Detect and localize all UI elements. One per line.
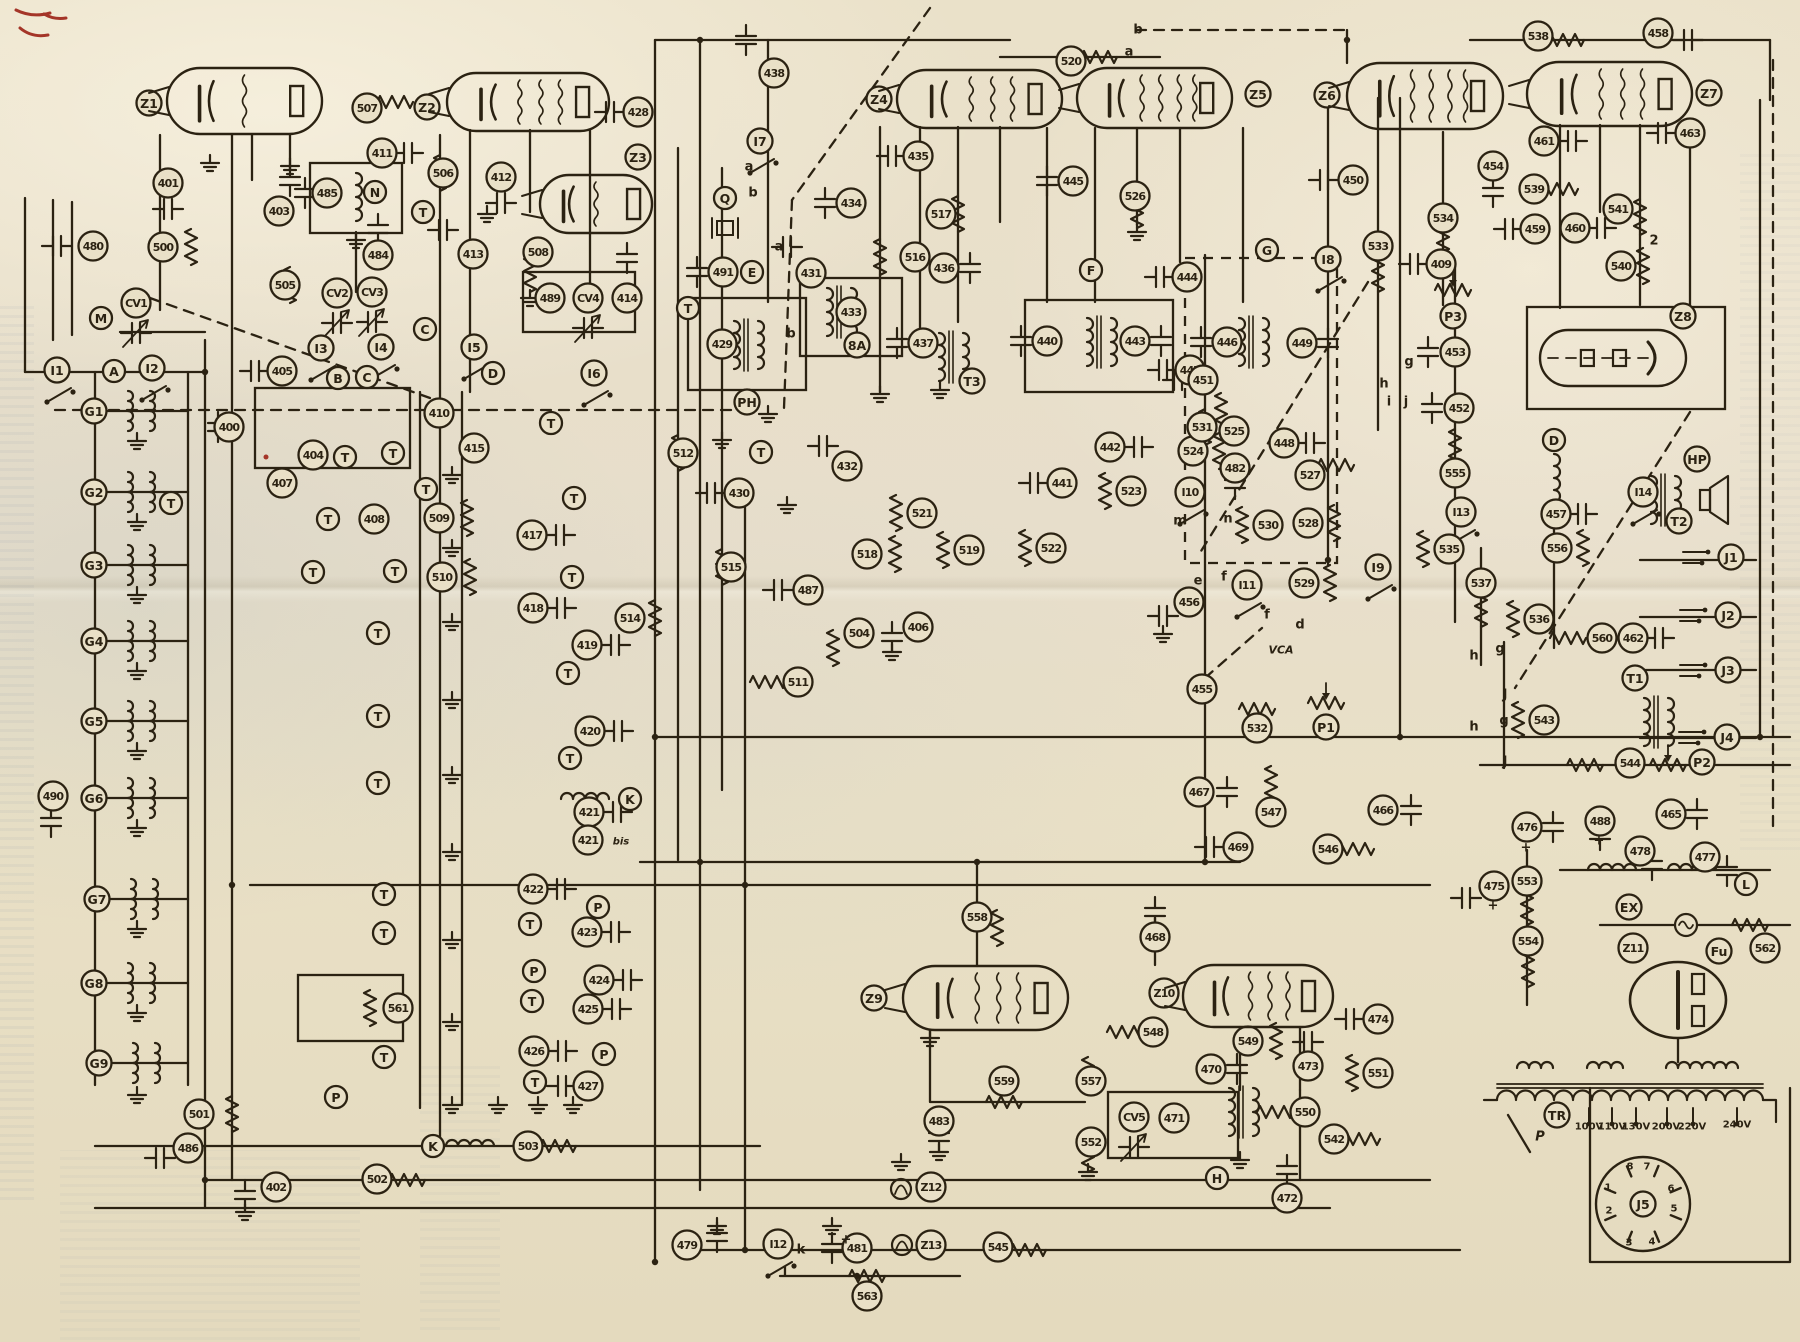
callout-442: 442: [1096, 433, 1125, 462]
svg-text:I12: I12: [769, 1238, 786, 1251]
callout-T: T: [302, 561, 324, 583]
svg-text:T: T: [380, 926, 389, 941]
label-h: h: [1379, 377, 1388, 392]
callout-T: T: [373, 922, 395, 944]
label-130V: 130V: [1622, 1122, 1651, 1133]
callout-549: 549: [1234, 1027, 1263, 1056]
svg-text:Z3: Z3: [629, 150, 647, 165]
callout-509: 509: [425, 504, 454, 533]
svg-text:486: 486: [178, 1142, 200, 1155]
callout-T: T: [415, 478, 437, 500]
callout-T: T: [540, 412, 562, 434]
callout-448: 448: [1270, 429, 1299, 458]
callout-511: 511: [784, 668, 813, 697]
svg-text:I13: I13: [1452, 506, 1469, 519]
svg-text:404: 404: [303, 449, 325, 462]
callout-403: 403: [265, 197, 294, 226]
svg-text:Z6: Z6: [1318, 88, 1336, 103]
svg-text:CV1: CV1: [125, 297, 147, 310]
label-a: a: [775, 240, 784, 255]
callout-470: 470: [1197, 1055, 1226, 1084]
callout-521: 521: [908, 499, 937, 528]
callout-I10: I10: [1176, 478, 1205, 507]
label-VCA: VCA: [1268, 644, 1293, 657]
svg-text:556: 556: [1547, 542, 1569, 555]
label-g: g: [1499, 714, 1508, 729]
callout-559: 559: [990, 1067, 1019, 1096]
callout-458: 458: [1644, 19, 1673, 48]
svg-text:455: 455: [1192, 683, 1213, 696]
callout-522: 522: [1037, 534, 1066, 563]
svg-text:534: 534: [1433, 212, 1455, 225]
svg-text:D: D: [1549, 433, 1559, 448]
svg-text:L: L: [1742, 877, 1750, 892]
svg-text:528: 528: [1298, 517, 1319, 530]
svg-text:Z1: Z1: [140, 96, 158, 111]
label-f: f: [1221, 570, 1227, 585]
svg-text:444: 444: [1177, 271, 1199, 284]
svg-text:470: 470: [1201, 1063, 1223, 1076]
svg-text:I9: I9: [1371, 560, 1384, 575]
svg-text:T: T: [324, 512, 333, 527]
svg-text:P: P: [599, 1047, 608, 1062]
callout-T1: T1: [1623, 666, 1648, 691]
label-i: i: [1387, 395, 1391, 410]
svg-text:465: 465: [1661, 808, 1682, 821]
callout-G8: G8: [82, 971, 107, 996]
svg-text:445: 445: [1063, 175, 1084, 188]
label-b: b: [748, 186, 757, 201]
callout-CV2: CV2: [323, 279, 352, 308]
svg-text:562: 562: [1755, 942, 1776, 955]
svg-text:431: 431: [801, 267, 822, 280]
label-P: P: [1535, 1130, 1545, 1145]
svg-text:G4: G4: [85, 634, 104, 649]
svg-text:532: 532: [1247, 722, 1268, 735]
callout-D: D: [482, 362, 504, 384]
svg-text:425: 425: [578, 1003, 599, 1016]
label-f: f: [1264, 608, 1270, 623]
svg-text:542: 542: [1324, 1133, 1345, 1146]
callout-G4: G4: [82, 629, 107, 654]
svg-text:J3: J3: [1720, 663, 1734, 678]
callout-431: 431: [797, 259, 826, 288]
svg-text:418: 418: [523, 602, 544, 615]
svg-text:427: 427: [578, 1080, 599, 1093]
svg-text:Z13: Z13: [921, 1239, 942, 1252]
svg-text:457: 457: [1546, 508, 1567, 521]
callout-Q: Q: [714, 187, 736, 209]
callout-415: 415: [460, 434, 489, 463]
callout-465: 465: [1657, 800, 1686, 829]
svg-text:CV5: CV5: [1123, 1111, 1145, 1124]
callout-471: 471: [1160, 1104, 1189, 1133]
label-g: g: [1495, 642, 1504, 657]
callout-476: 476: [1513, 813, 1542, 842]
callout-556: 556: [1543, 534, 1572, 563]
svg-text:476: 476: [1517, 821, 1539, 834]
svg-text:480: 480: [83, 240, 105, 253]
callout-527: 527: [1296, 461, 1325, 490]
callout-N: N: [364, 181, 386, 203]
callout-B: B: [327, 367, 349, 389]
callout-506: 506: [429, 159, 458, 188]
svg-text:485: 485: [317, 187, 338, 200]
tube-Z8: [1540, 330, 1686, 386]
svg-text:G2: G2: [85, 485, 104, 500]
label-+: +: [841, 1233, 852, 1248]
callout-EX: EX: [1617, 895, 1642, 920]
svg-text:507: 507: [357, 102, 378, 115]
callout-CV1: CV1: [122, 289, 151, 318]
svg-text:484: 484: [368, 249, 390, 262]
svg-text:436: 436: [934, 262, 956, 275]
callout-480: 480: [79, 232, 108, 261]
svg-text:P: P: [593, 900, 602, 915]
callout-I9: I9: [1366, 555, 1391, 580]
callout-429: 429: [708, 330, 737, 359]
svg-text:I10: I10: [1181, 486, 1199, 499]
svg-text:HP: HP: [1687, 452, 1707, 467]
callout-T: T: [750, 441, 772, 463]
callout-551: 551: [1364, 1059, 1393, 1088]
svg-text:514: 514: [620, 612, 642, 625]
callout-417: 417: [518, 521, 547, 550]
svg-text:I8: I8: [1321, 252, 1334, 267]
svg-text:T: T: [419, 205, 428, 220]
svg-text:T: T: [380, 887, 389, 902]
callout-T: T: [677, 297, 699, 319]
svg-text:525: 525: [1224, 425, 1245, 438]
svg-text:413: 413: [463, 248, 484, 261]
label-2: 2: [1649, 234, 1658, 249]
svg-text:422: 422: [523, 883, 544, 896]
tube-Z6: [1329, 63, 1503, 129]
callout-419: 419: [573, 631, 602, 660]
callout-Z2: Z2: [415, 95, 440, 120]
callout-G1: G1: [82, 399, 107, 424]
svg-text:410: 410: [429, 407, 451, 420]
callout-553: 553: [1513, 867, 1542, 896]
label-d: d: [1295, 618, 1304, 633]
callout-P3: P3: [1441, 304, 1466, 329]
svg-text:454: 454: [1483, 160, 1505, 173]
svg-text:545: 545: [988, 1241, 1009, 1254]
svg-text:G1: G1: [85, 404, 104, 419]
svg-text:C: C: [362, 370, 371, 385]
svg-text:433: 433: [841, 306, 862, 319]
callout-453: 453: [1441, 338, 1470, 367]
callout-420: 420: [576, 717, 605, 746]
svg-text:560: 560: [1592, 632, 1614, 645]
callout-Z12: Z12: [917, 1173, 946, 1202]
tube-Z5: [1059, 68, 1232, 128]
callout-547: 547: [1257, 798, 1286, 827]
label-+: +: [1488, 899, 1499, 914]
callout-T: T: [334, 446, 356, 468]
svg-text:419: 419: [577, 639, 598, 652]
svg-text:473: 473: [1298, 1060, 1319, 1073]
svg-text:P3: P3: [1444, 309, 1462, 324]
callout-J3: J3: [1716, 658, 1741, 683]
svg-text:501: 501: [189, 1108, 210, 1121]
callout-K: K: [422, 1135, 444, 1157]
svg-text:491: 491: [713, 266, 734, 279]
svg-text:557: 557: [1081, 1075, 1102, 1088]
callout-548: 548: [1139, 1018, 1168, 1047]
callout-488: 488: [1586, 807, 1615, 836]
callout-433: 433: [837, 298, 866, 327]
callout-536: 536: [1525, 605, 1554, 634]
svg-text:530: 530: [1258, 519, 1280, 532]
label-j: j: [1403, 395, 1408, 410]
callout-G: G: [1256, 239, 1278, 261]
svg-text:G8: G8: [85, 976, 104, 991]
label-e: e: [1194, 574, 1203, 589]
svg-text:T1: T1: [1626, 671, 1643, 686]
svg-text:561: 561: [388, 1002, 409, 1015]
label-6: 6: [1668, 1184, 1675, 1195]
svg-text:Z8: Z8: [1674, 309, 1692, 324]
label-5: 5: [1671, 1204, 1678, 1215]
callout-450: 450: [1339, 166, 1368, 195]
svg-text:516: 516: [905, 251, 927, 264]
svg-text:469: 469: [1228, 841, 1249, 854]
callout-K: K: [619, 788, 641, 810]
callout-563: 563: [853, 1282, 882, 1311]
svg-text:401: 401: [158, 177, 179, 190]
callout-J5: J5: [1631, 1192, 1656, 1217]
svg-text:456: 456: [1179, 596, 1201, 609]
label-200V: 200V: [1652, 1122, 1681, 1133]
callout-Z7: Z7: [1697, 81, 1722, 106]
svg-text:T: T: [374, 626, 383, 641]
callout-I12: I12: [764, 1230, 793, 1259]
svg-text:P1: P1: [1317, 720, 1335, 735]
callout-428: 428: [624, 98, 653, 127]
svg-text:T: T: [341, 450, 350, 465]
svg-text:472: 472: [1277, 1192, 1298, 1205]
svg-text:524: 524: [1183, 445, 1205, 458]
callout-I7: I7: [748, 129, 773, 154]
callout-T: T: [384, 560, 406, 582]
callout-D: D: [1543, 429, 1565, 451]
svg-text:T: T: [684, 301, 693, 316]
svg-text:533: 533: [1368, 240, 1389, 253]
svg-text:479: 479: [677, 1239, 698, 1252]
svg-text:468: 468: [1145, 931, 1166, 944]
callout-Fu: Fu: [1707, 939, 1732, 964]
callout-557: 557: [1077, 1067, 1106, 1096]
callout-555: 555: [1441, 459, 1470, 488]
svg-text:547: 547: [1261, 806, 1282, 819]
tube-Z4: [879, 70, 1062, 128]
svg-text:T: T: [547, 416, 556, 431]
svg-text:535: 535: [1439, 543, 1460, 556]
label-h: h: [1469, 720, 1478, 735]
svg-text:I5: I5: [467, 340, 480, 355]
svg-text:500: 500: [153, 241, 175, 254]
callout-454: 454: [1479, 152, 1508, 181]
callout-562: 562: [1751, 934, 1780, 963]
svg-text:435: 435: [908, 150, 929, 163]
svg-text:515: 515: [721, 561, 742, 574]
callout-Z3: Z3: [626, 145, 651, 170]
svg-text:T: T: [570, 491, 579, 506]
svg-text:489: 489: [540, 292, 561, 305]
svg-text:531: 531: [1192, 421, 1213, 434]
callout-462: 462: [1619, 624, 1648, 653]
tube-Z2: [429, 73, 609, 131]
callout-T2: T2: [1667, 509, 1692, 534]
callout-455: 455: [1188, 675, 1217, 704]
callout-487: 487: [794, 576, 823, 605]
svg-text:550: 550: [1295, 1106, 1317, 1119]
svg-text:544: 544: [1620, 757, 1642, 770]
label-b: b: [786, 327, 795, 342]
callout-552: 552: [1077, 1128, 1106, 1157]
label-a: a: [1125, 45, 1134, 60]
label-J: J: [1502, 755, 1508, 770]
callout-434: 434: [837, 189, 866, 218]
callout-L: L: [1735, 873, 1757, 895]
label-7: 7: [1644, 1162, 1651, 1173]
svg-text:Z12: Z12: [921, 1181, 942, 1194]
callout-437: 437: [909, 329, 938, 358]
label-+: +: [1521, 841, 1532, 856]
callout-501: 501: [185, 1100, 214, 1129]
svg-text:558: 558: [967, 911, 988, 924]
callout-561: 561: [384, 994, 413, 1023]
svg-text:420: 420: [580, 725, 602, 738]
svg-text:432: 432: [837, 460, 858, 473]
svg-text:I1: I1: [50, 363, 63, 378]
svg-text:T: T: [422, 482, 431, 497]
svg-text:460: 460: [1565, 222, 1587, 235]
callout-478: 478: [1626, 837, 1655, 866]
svg-text:452: 452: [1449, 402, 1470, 415]
svg-text:E: E: [748, 265, 757, 280]
svg-text:563: 563: [857, 1290, 878, 1303]
callout-P: P: [325, 1086, 347, 1108]
callout-477: 477: [1691, 843, 1720, 872]
svg-text:J4: J4: [1719, 730, 1734, 745]
svg-text:CV2: CV2: [326, 287, 348, 300]
callout-485: 485: [313, 179, 342, 208]
callout-441: 441: [1048, 469, 1077, 498]
callout-508: 508: [524, 238, 553, 267]
callout-T: T: [561, 566, 583, 588]
callout-HP: HP: [1685, 447, 1710, 472]
callout-451: 451: [1189, 366, 1218, 395]
svg-text:520: 520: [1061, 55, 1083, 68]
components-layer: [41, 25, 1776, 1282]
svg-text:559: 559: [994, 1075, 1015, 1088]
svg-text:T: T: [167, 496, 176, 511]
svg-text:446: 446: [1217, 336, 1239, 349]
callout-461: 461: [1530, 127, 1559, 156]
callout-525: 525: [1220, 417, 1249, 446]
svg-text:551: 551: [1368, 1067, 1389, 1080]
callout-400: 400: [215, 413, 244, 442]
callout-I2: I2: [140, 356, 165, 381]
callout-A: A: [103, 360, 125, 382]
callout-J4: J4: [1715, 725, 1740, 750]
label-a: a: [745, 160, 754, 175]
svg-text:552: 552: [1081, 1136, 1102, 1149]
svg-text:441: 441: [1052, 477, 1073, 490]
callout-517: 517: [927, 200, 956, 229]
callout-486: 486: [174, 1134, 203, 1163]
svg-text:505: 505: [275, 279, 296, 292]
callout-405: 405: [268, 357, 297, 386]
svg-text:417: 417: [522, 529, 543, 542]
callout-423: 423: [573, 918, 602, 947]
svg-text:T: T: [391, 564, 400, 579]
svg-text:CV3: CV3: [361, 286, 383, 299]
svg-text:539: 539: [1524, 183, 1545, 196]
callout-472: 472: [1273, 1184, 1302, 1213]
callout-406: 406: [904, 613, 933, 642]
callout-E: E: [741, 261, 763, 283]
callout-I5: I5: [462, 335, 487, 360]
svg-text:466: 466: [1373, 804, 1395, 817]
callout-443: 443: [1121, 327, 1150, 356]
svg-text:G9: G9: [90, 1056, 109, 1071]
callout-PH: PH: [735, 390, 760, 415]
callout-490: 490: [39, 782, 68, 811]
callout-449: 449: [1288, 329, 1317, 358]
callout-404: 404: [299, 441, 328, 470]
callout-531: 531: [1188, 413, 1217, 442]
callout-539: 539: [1520, 175, 1549, 204]
callout-T: T: [521, 990, 543, 1012]
label-240V: 240V: [1723, 1120, 1752, 1131]
svg-text:529: 529: [1294, 577, 1315, 590]
callout-P1: P1: [1314, 715, 1339, 740]
svg-text:I6: I6: [587, 366, 601, 381]
callout-407: 407: [268, 469, 297, 498]
callout-520: 520: [1057, 47, 1086, 76]
svg-text:548: 548: [1143, 1026, 1164, 1039]
callout-484: 484: [364, 241, 393, 270]
svg-text:412: 412: [491, 171, 512, 184]
svg-text:T: T: [566, 751, 575, 766]
svg-text:478: 478: [1630, 845, 1651, 858]
callout-528: 528: [1294, 509, 1323, 538]
svg-text:Q: Q: [720, 191, 731, 206]
callout-408: 408: [360, 505, 389, 534]
svg-text:421: 421: [579, 806, 600, 819]
svg-text:451: 451: [1193, 374, 1214, 387]
svg-text:541: 541: [1608, 203, 1629, 216]
svg-text:I14: I14: [1634, 486, 1652, 499]
callout-T: T: [160, 492, 182, 514]
callout-504: 504: [845, 619, 874, 648]
svg-text:474: 474: [1368, 1013, 1390, 1026]
svg-text:438: 438: [764, 67, 785, 80]
svg-text:449: 449: [1292, 337, 1313, 350]
svg-text:T: T: [757, 445, 766, 460]
svg-text:426: 426: [524, 1045, 546, 1058]
callout-I8: I8: [1316, 247, 1341, 272]
callout-483: 483: [925, 1107, 954, 1136]
svg-text:CV4: CV4: [577, 292, 600, 305]
label-h: h: [1469, 649, 1478, 664]
svg-text:A: A: [109, 364, 119, 379]
callout-543: 543: [1530, 706, 1559, 735]
svg-text:543: 543: [1534, 714, 1555, 727]
